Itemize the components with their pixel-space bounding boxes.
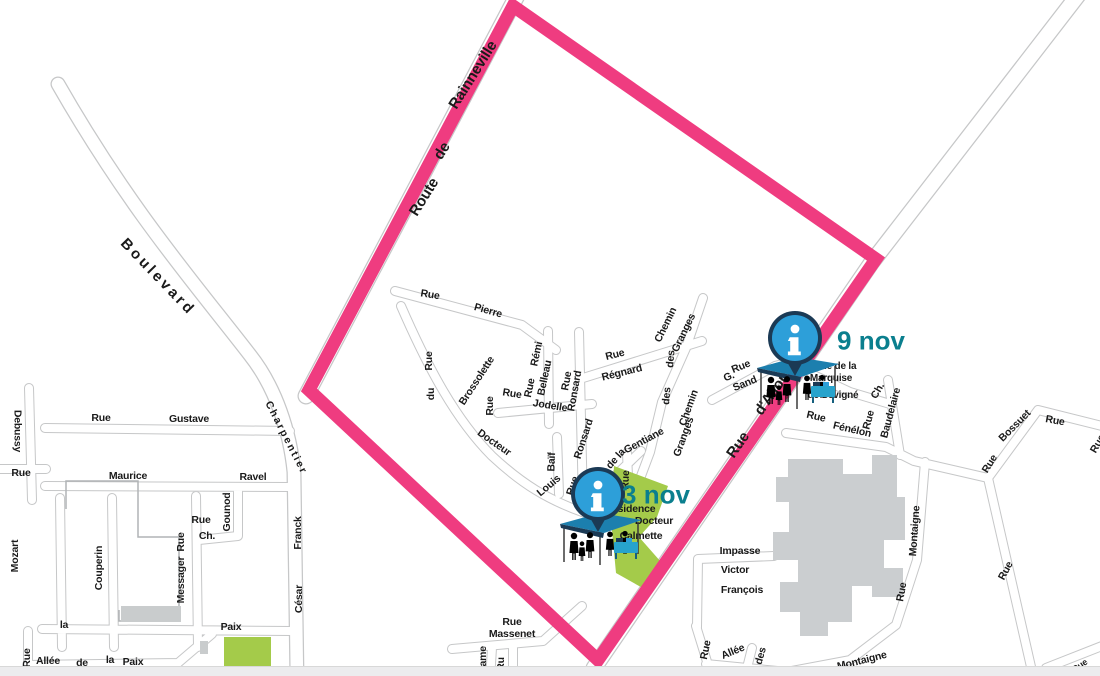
large-building-footprint: [773, 455, 905, 636]
tiny-building: [200, 641, 208, 654]
event-marker-9nov[interactable]: 9 nov: [735, 306, 865, 421]
event-date-label: 3 nov: [622, 480, 690, 511]
outlined-building: [66, 481, 179, 621]
map-canvas[interactable]: RoutedeRainnevilleRued'AllonvilleBouleva…: [0, 0, 1100, 676]
event-marker-3nov[interactable]: 3 nov: [538, 462, 668, 577]
map-edge-strip: [0, 666, 1100, 676]
event-date-label: 9 nov: [837, 326, 905, 357]
small-building: [121, 606, 181, 622]
info-tent-icon: [735, 306, 865, 421]
